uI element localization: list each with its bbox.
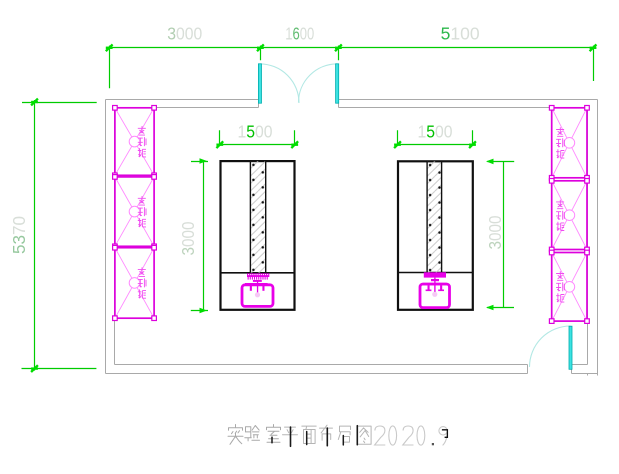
svg-text:3000: 3000 [485, 215, 505, 249]
svg-text:3000: 3000 [178, 221, 198, 255]
svg-text:1500: 1500 [418, 122, 453, 142]
svg-text:1500: 1500 [238, 122, 273, 142]
svg-text:1600: 1600 [285, 24, 314, 44]
svg-text:3000: 3000 [167, 24, 202, 44]
svg-text:5100: 5100 [441, 24, 480, 44]
svg-text:5370: 5370 [9, 216, 29, 254]
